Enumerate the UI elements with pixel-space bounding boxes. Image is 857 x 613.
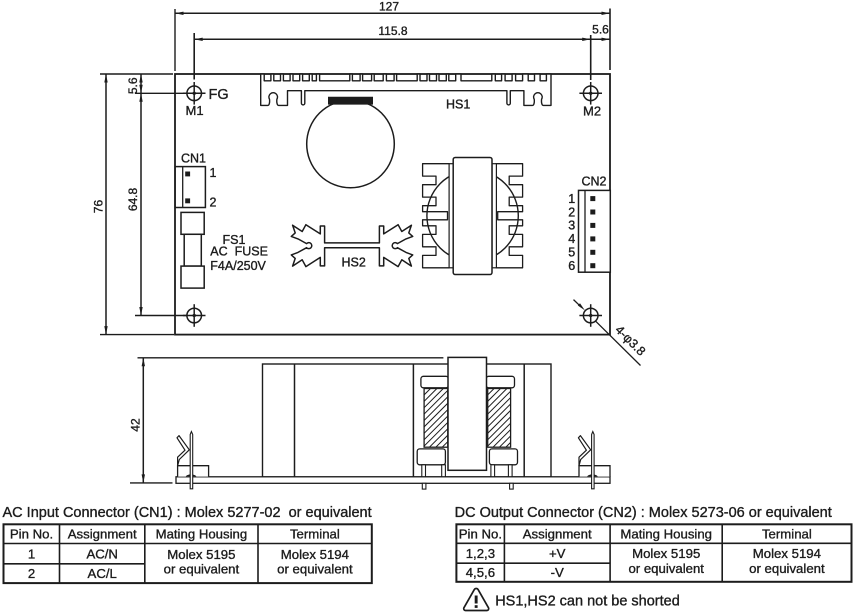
svg-text:or equivalent: or equivalent — [164, 562, 240, 577]
svg-text:HS2: HS2 — [342, 255, 366, 269]
svg-text:5.6: 5.6 — [592, 23, 609, 37]
svg-text:F4A/250V: F4A/250V — [210, 259, 266, 273]
svg-text:1: 1 — [568, 192, 575, 206]
svg-text:1: 1 — [28, 546, 35, 561]
svg-text:5: 5 — [568, 246, 575, 260]
svg-text:2: 2 — [28, 566, 35, 581]
svg-text:Terminal: Terminal — [762, 527, 812, 542]
svg-text:Mating Housing: Mating Housing — [156, 527, 248, 542]
svg-text:or equivalent: or equivalent — [628, 561, 704, 576]
svg-text:AC Input Connector (CN1) : Mol: AC Input Connector (CN1) : Molex 5277-02… — [3, 505, 372, 521]
svg-text:AC FUSE: AC FUSE — [210, 244, 268, 258]
svg-text:Molex 5194: Molex 5194 — [281, 547, 349, 562]
svg-text:Mating Housing: Mating Housing — [620, 527, 712, 542]
svg-text:+V: +V — [549, 546, 566, 561]
svg-text:-V: -V — [551, 565, 564, 580]
svg-text:6: 6 — [568, 259, 575, 273]
svg-text:M2: M2 — [583, 104, 601, 119]
svg-text:76: 76 — [92, 200, 106, 214]
svg-text:or equivalent: or equivalent — [277, 562, 353, 577]
svg-text:or equivalent: or equivalent — [749, 561, 825, 576]
svg-text:127: 127 — [379, 0, 399, 14]
svg-text:Pin No.: Pin No. — [10, 527, 53, 542]
svg-text:1,2,3: 1,2,3 — [466, 546, 495, 561]
svg-text:Assignment: Assignment — [68, 527, 137, 542]
svg-text:CN2: CN2 — [582, 174, 607, 188]
svg-text:3: 3 — [568, 219, 575, 233]
svg-text:AC/N: AC/N — [86, 546, 118, 561]
svg-text:Molex 5195: Molex 5195 — [167, 547, 235, 562]
svg-text:DC Output Connector (CN2) : Mo: DC Output Connector (CN2) : Molex 5273-0… — [455, 505, 832, 521]
svg-text:2: 2 — [210, 196, 217, 210]
svg-text:FG: FG — [209, 87, 229, 103]
svg-text:4: 4 — [568, 232, 575, 246]
svg-text:Molex 5195: Molex 5195 — [632, 546, 700, 561]
svg-text:Pin No.: Pin No. — [459, 527, 502, 542]
svg-text:Terminal: Terminal — [290, 527, 340, 542]
svg-text:Assignment: Assignment — [523, 527, 592, 542]
svg-text:1: 1 — [210, 166, 217, 180]
svg-text:2: 2 — [568, 205, 575, 219]
svg-text:4,5,6: 4,5,6 — [466, 565, 495, 580]
svg-text:HS1: HS1 — [446, 98, 470, 112]
svg-text:42: 42 — [129, 418, 143, 432]
svg-text:M1: M1 — [186, 103, 204, 118]
svg-text:Molex 5194: Molex 5194 — [753, 546, 821, 561]
svg-text:115.8: 115.8 — [378, 24, 407, 38]
svg-text:HS1,HS2 can not be shorted: HS1,HS2 can not be shorted — [495, 593, 680, 609]
svg-text:AC/L: AC/L — [88, 566, 117, 581]
svg-text:64.8: 64.8 — [126, 187, 140, 211]
svg-text:CN1: CN1 — [181, 151, 206, 165]
svg-text:4-φ3.8: 4-φ3.8 — [612, 323, 648, 359]
svg-text:5.6: 5.6 — [126, 77, 140, 94]
